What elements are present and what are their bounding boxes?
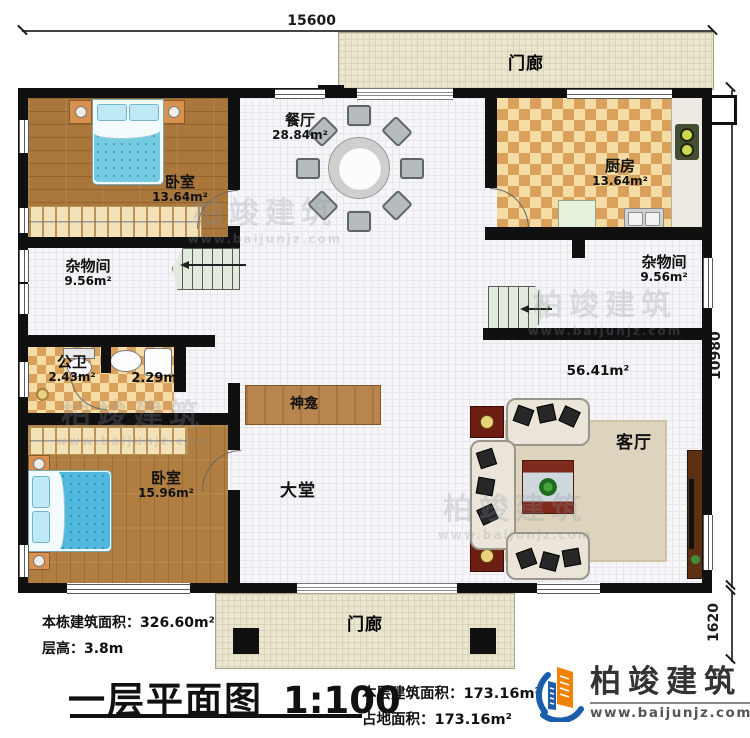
- room-label-hall: 大堂: [268, 482, 328, 502]
- room-name: 卧室: [128, 470, 204, 487]
- stairs-left-arrow: [188, 264, 246, 266]
- floor-height-value: 3.8m: [84, 641, 123, 657]
- window: [19, 250, 29, 282]
- wall: [228, 490, 240, 593]
- window: [19, 120, 29, 153]
- room-name: 卧室: [140, 174, 220, 191]
- room-label-shrine: 神龛: [268, 396, 340, 412]
- brand-logo: 柏竣建筑 www.baijunjz.com: [532, 664, 750, 722]
- pillow: [97, 104, 127, 121]
- room-name: 杂物间: [40, 258, 136, 275]
- porch-column: [233, 628, 259, 654]
- kitchen-sink: [624, 208, 664, 229]
- room-area: 56.41m²: [556, 364, 640, 380]
- floor-drain: [36, 388, 49, 401]
- tv: [689, 479, 694, 549]
- room-name: 杂物间: [622, 254, 706, 271]
- building-area-row: 本栋建筑面积： 326.60m²: [42, 612, 215, 632]
- lamp: [480, 549, 494, 563]
- wall: [18, 413, 188, 425]
- stairs-right-arrowhead: [520, 305, 529, 313]
- sofa-pillow: [476, 477, 496, 497]
- room-label-dining: 餐厅 28.84m²: [258, 112, 342, 143]
- wall: [18, 237, 240, 248]
- porch-column: [470, 628, 496, 654]
- brand-name: 柏竣建筑: [590, 665, 750, 699]
- room-name: 神龛: [268, 396, 340, 412]
- room-name: 餐厅: [258, 112, 342, 129]
- sofa-pillow: [476, 448, 497, 469]
- wall: [228, 98, 240, 190]
- dining-table-top: [338, 147, 382, 191]
- room-area: 13.64m²: [140, 191, 220, 205]
- room-label-living-area: 56.41m²: [556, 364, 640, 380]
- building-area-label: 本栋建筑面积：: [42, 612, 140, 632]
- floor-height-label: 层高：: [42, 638, 84, 658]
- room-label-bathroom: 公卫 2.43m²: [38, 354, 106, 385]
- floor-area-row: 本层建筑面积： 173.16m²: [362, 682, 541, 703]
- side-table: [470, 406, 504, 438]
- window: [19, 545, 29, 577]
- wall: [600, 583, 712, 593]
- room-name: 大堂: [268, 482, 328, 502]
- footprint-value: 173.16m²: [435, 712, 512, 728]
- wall: [190, 583, 297, 593]
- stats-left: 本栋建筑面积： 326.60m² 层高： 3.8m: [42, 612, 215, 658]
- room-label-storage-right: 杂物间 9.56m²: [622, 254, 706, 285]
- room-label-laundry: 2.29m²: [126, 372, 188, 387]
- dining-table: [328, 137, 390, 199]
- bedroom-bottom-wardrobe: [28, 427, 188, 455]
- sofa-pillow: [539, 551, 560, 572]
- stairs-right-arrow: [528, 308, 552, 310]
- room-label-bedroom-bottom: 卧室 15.96m²: [128, 470, 204, 501]
- window: [567, 89, 672, 99]
- footprint-row: 占地面积： 173.16m²: [362, 708, 541, 729]
- room-area: 28.84m²: [258, 129, 342, 143]
- room-label-kitchen: 厨房 13.64m²: [578, 158, 662, 189]
- pillow: [129, 104, 159, 121]
- lamp: [480, 415, 494, 429]
- stairs-left-arrowhead: [180, 261, 189, 269]
- sofa-bottom: [506, 532, 590, 580]
- sofa-pillow: [536, 403, 556, 423]
- floor-plan-canvas: 15600 10980 1620 门廊: [0, 0, 750, 738]
- room-area: 9.56m²: [622, 271, 706, 285]
- plant-decor: [691, 555, 700, 564]
- floor-area-label: 本层建筑面积：: [362, 682, 464, 703]
- pillow: [32, 476, 50, 508]
- bed-top: [92, 99, 164, 185]
- sofa-pillow: [558, 405, 581, 428]
- window: [67, 584, 190, 594]
- porch-top-label: 门廊: [508, 49, 544, 74]
- dining-chair: [400, 158, 424, 179]
- window: [19, 362, 29, 397]
- dimension-line-right: [731, 90, 733, 588]
- room-label-bedroom-top: 卧室 13.64m²: [140, 174, 220, 205]
- bedroom-top-wardrobe: [28, 206, 202, 238]
- coffee-table: [522, 460, 574, 514]
- sink-basin: [628, 212, 643, 226]
- wall: [485, 227, 712, 240]
- sofa-pillow: [516, 548, 538, 570]
- brand-website: www.baijunjz.com: [590, 702, 750, 721]
- stats-right: 本层建筑面积： 173.16m² 占地面积： 173.16m²: [362, 682, 541, 729]
- fridge: [558, 200, 596, 229]
- room-label-storage-left: 杂物间 9.56m²: [40, 258, 136, 289]
- stove: [675, 124, 699, 160]
- stairs-left: [172, 248, 240, 290]
- porch-top: 门廊: [338, 32, 714, 90]
- footprint-label: 占地面积：: [362, 708, 435, 729]
- nightstand: [69, 100, 92, 124]
- blanket: [59, 472, 110, 549]
- brand-logo-icon: [532, 664, 584, 722]
- dining-chair: [296, 158, 320, 179]
- title-underline: [70, 714, 362, 718]
- sink-basin: [645, 212, 660, 226]
- wall: [485, 98, 497, 188]
- stove-burner: [680, 143, 694, 157]
- window: [19, 208, 29, 233]
- room-name: 公卫: [38, 354, 106, 371]
- brand-text-block: 柏竣建筑 www.baijunjz.com: [590, 665, 750, 720]
- room-area: 2.43m²: [38, 371, 106, 385]
- nightstand: [28, 552, 50, 570]
- building-area-value: 326.60m²: [140, 615, 215, 631]
- room-name: 厨房: [578, 158, 662, 175]
- wall: [228, 383, 240, 450]
- kitchen-counter: [671, 98, 703, 227]
- sofa-pillow: [513, 405, 535, 427]
- room-area: 15.96m²: [128, 487, 204, 501]
- wall: [457, 583, 537, 593]
- sofa-pillow: [562, 548, 582, 568]
- window: [275, 89, 325, 99]
- floor-area-value: 173.16m²: [464, 686, 541, 702]
- nightstand: [162, 100, 185, 124]
- dimension-top-label: 15600: [286, 13, 336, 29]
- pillow: [32, 511, 50, 543]
- room-area: 13.64m²: [578, 175, 662, 189]
- bed-bottom: [28, 470, 112, 552]
- wall: [483, 328, 702, 340]
- wall: [18, 335, 215, 347]
- wall: [572, 240, 585, 258]
- room-area: 9.56m²: [40, 275, 136, 289]
- stove-burner: [680, 128, 694, 142]
- porch-bottom-label: 门廊: [347, 610, 383, 635]
- sliding-door: [357, 88, 453, 100]
- sheet-fold: [51, 472, 65, 549]
- dimension-line-porch: [731, 592, 733, 662]
- dimension-porch-label: 1620: [706, 598, 722, 642]
- plant: [539, 478, 557, 496]
- window: [19, 284, 29, 314]
- dining-chair: [347, 211, 371, 232]
- window: [537, 584, 600, 594]
- wall: [18, 583, 67, 593]
- sofa-top: [506, 398, 590, 446]
- dining-chair: [347, 105, 371, 126]
- room-area: 2.29m²: [126, 372, 188, 387]
- bathroom-sink: [110, 350, 142, 372]
- sofa-pillow: [476, 503, 499, 526]
- floor-height-row: 层高： 3.8m: [42, 638, 215, 658]
- room-label-living: 客厅: [604, 434, 664, 454]
- room-name: 客厅: [604, 434, 664, 454]
- window: [703, 515, 713, 570]
